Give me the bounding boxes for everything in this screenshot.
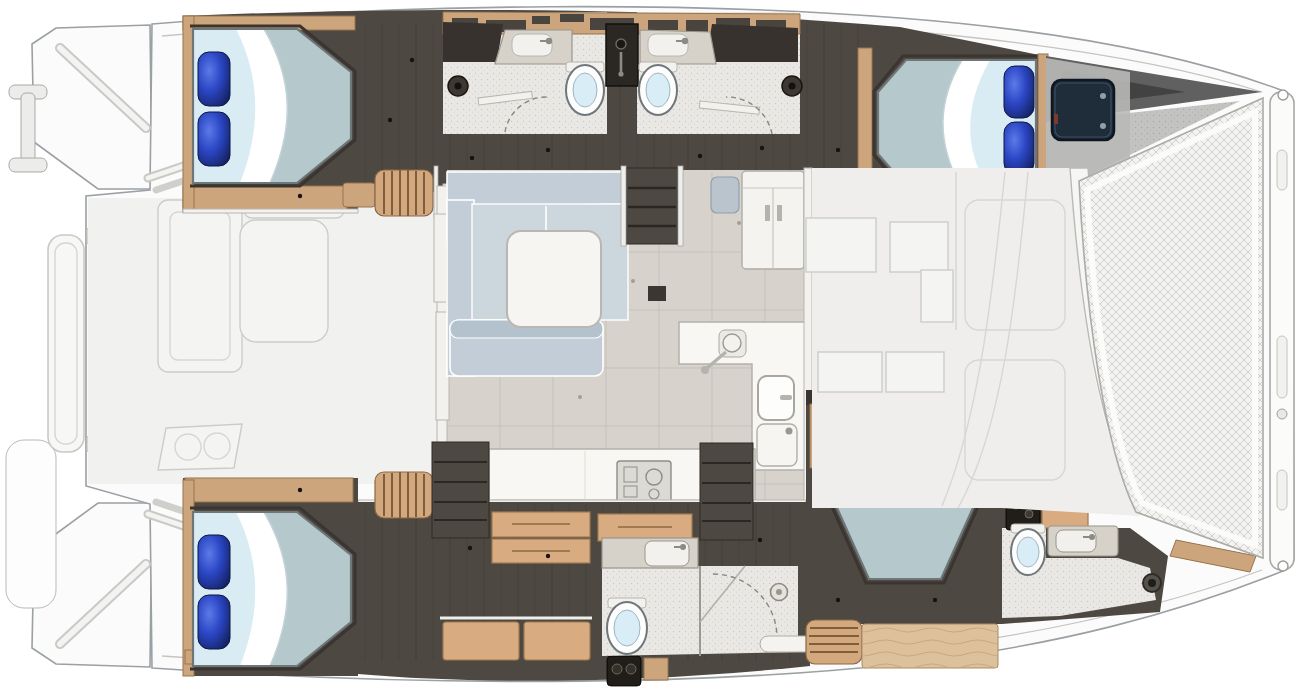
stairs-stbd-aft (375, 470, 438, 522)
port-transom-platform (32, 25, 152, 189)
faucet-icon (701, 366, 709, 374)
pillow (1004, 66, 1034, 118)
pillow (198, 112, 230, 166)
wood-sole-panel (862, 624, 998, 668)
nav-cabinet (742, 171, 804, 269)
vanity-port-aft (495, 30, 572, 64)
toilet-stbd-mid (607, 598, 647, 654)
cockpit-table (240, 220, 328, 342)
mast-post (648, 286, 666, 301)
floor-plan-stage: Catamaran yacht interior layout floor pl… (0, 0, 1313, 692)
pillow (1004, 122, 1034, 174)
nav-seat (711, 177, 739, 213)
salon (434, 166, 812, 509)
foredeck-seat (806, 218, 876, 272)
sink (512, 34, 552, 56)
bed-port-fwd (878, 60, 1036, 186)
steps-salon-to-port (621, 166, 683, 246)
foredeck-seat (890, 222, 948, 272)
vanity-port-fwd (640, 30, 716, 64)
stern-platform-lower (6, 440, 56, 608)
bow-tip-fitting (1278, 90, 1288, 100)
cockpit-sink-module (158, 424, 242, 470)
sliding-door (434, 214, 447, 302)
vanity-stbd-fwd (1048, 526, 1118, 556)
foredeck-tray (921, 270, 953, 322)
aft-cockpit (88, 196, 440, 484)
hull-bench-seats (440, 618, 592, 660)
toilet-port-fwd (639, 62, 677, 115)
galley-tray (757, 424, 797, 466)
deck-fitting (1143, 574, 1161, 592)
foredeck-seat (818, 352, 882, 392)
toilet-port-aft (566, 62, 604, 115)
pillow (198, 535, 230, 589)
stove (617, 461, 671, 503)
salon-table (507, 231, 601, 327)
deck-hatch-module (607, 656, 668, 686)
pillow (198, 595, 230, 649)
bow-tip-fitting (1278, 561, 1288, 571)
foredeck-seat (886, 352, 944, 392)
catamaran-floor-plan: Catamaran yacht interior layout floor pl… (0, 0, 1313, 692)
stairs-stbd-fwd (806, 620, 862, 664)
bow-crossbeam (1270, 90, 1294, 571)
sink (648, 34, 688, 56)
vanity-stbd-mid (602, 538, 698, 568)
sink (1056, 530, 1096, 552)
toilet-stbd-fwd (1011, 524, 1045, 575)
shower-head-icon (616, 39, 626, 49)
pillow (198, 52, 230, 106)
shower-column (606, 24, 638, 86)
